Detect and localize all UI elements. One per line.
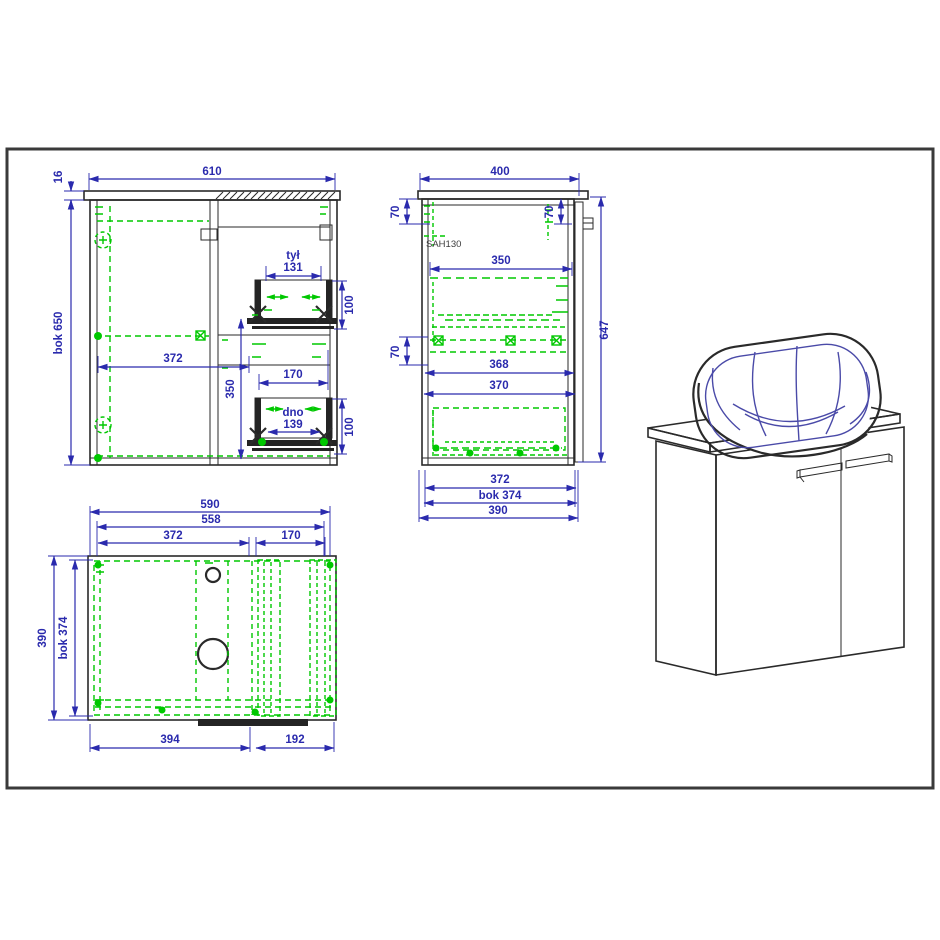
dim-top-372: 372 [163, 530, 182, 542]
dim-top-394: 394 [160, 734, 180, 746]
technical-drawing-page: 610 16 bok 650 372 350 tył 131 100 170 d… [0, 0, 940, 940]
dim-front-610: 610 [202, 166, 221, 178]
dim-side-647: 647 [599, 320, 611, 339]
dim-side-70-left: 70 [390, 206, 402, 219]
dim-drawer-back-131: 131 [283, 262, 303, 274]
dim-side-70-mid: 70 [390, 346, 402, 359]
drawing-frame [7, 149, 933, 788]
dim-drawer-bottom-139: 139 [283, 419, 302, 431]
dim-front-372: 372 [163, 353, 182, 365]
dim-side-350: 350 [491, 255, 510, 267]
dim-side-372: 372 [490, 474, 509, 486]
technical-drawing-canvas: 610 16 bok 650 372 350 tył 131 100 170 d… [0, 0, 940, 940]
top-front-strip [198, 719, 308, 726]
dim-front-100-bottom: 100 [344, 417, 356, 436]
dim-front-100-top: 100 [344, 295, 356, 314]
dim-front-170: 170 [283, 369, 302, 381]
dim-side-400: 400 [490, 166, 509, 178]
label-hinge-code: SAH130 [426, 239, 461, 250]
dim-side-368: 368 [489, 359, 509, 371]
dim-top-192: 192 [285, 734, 304, 746]
dim-side-70-right: 70 [544, 206, 556, 219]
dim-top-bok374: bok 374 [58, 616, 70, 659]
label-drawer-back: tył [286, 250, 300, 262]
dim-front-350: 350 [225, 379, 237, 398]
dim-front-bok650: bok 650 [53, 312, 65, 355]
label-drawer-bottom: dno [282, 407, 303, 419]
dim-side-370: 370 [489, 380, 508, 392]
dim-top-390: 390 [37, 628, 49, 647]
dim-front-16: 16 [53, 171, 65, 184]
dim-top-170: 170 [281, 530, 300, 542]
dim-top-590: 590 [200, 499, 219, 511]
dim-side-390: 390 [488, 505, 507, 517]
dim-side-bok374: bok 374 [479, 490, 522, 502]
dim-top-558: 558 [201, 514, 221, 526]
